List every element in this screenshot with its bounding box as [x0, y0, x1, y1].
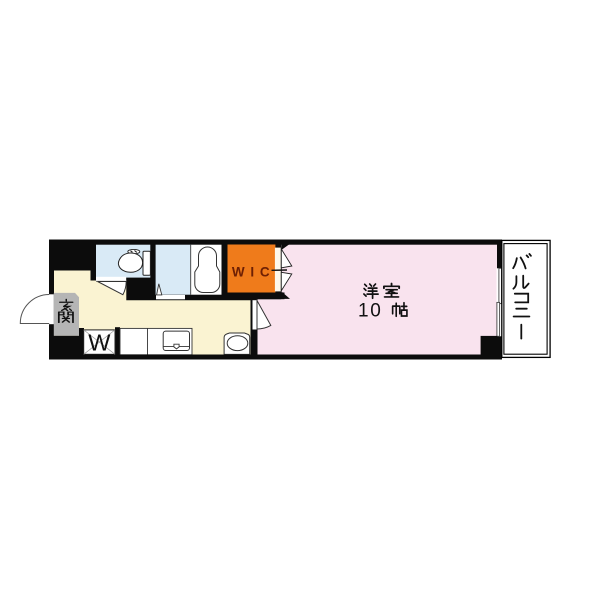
svg-text:1: 1 — [358, 301, 369, 322]
svg-text:W I C: W I C — [232, 264, 271, 279]
svg-text:0: 0 — [370, 301, 381, 322]
svg-text:W: W — [88, 330, 111, 356]
